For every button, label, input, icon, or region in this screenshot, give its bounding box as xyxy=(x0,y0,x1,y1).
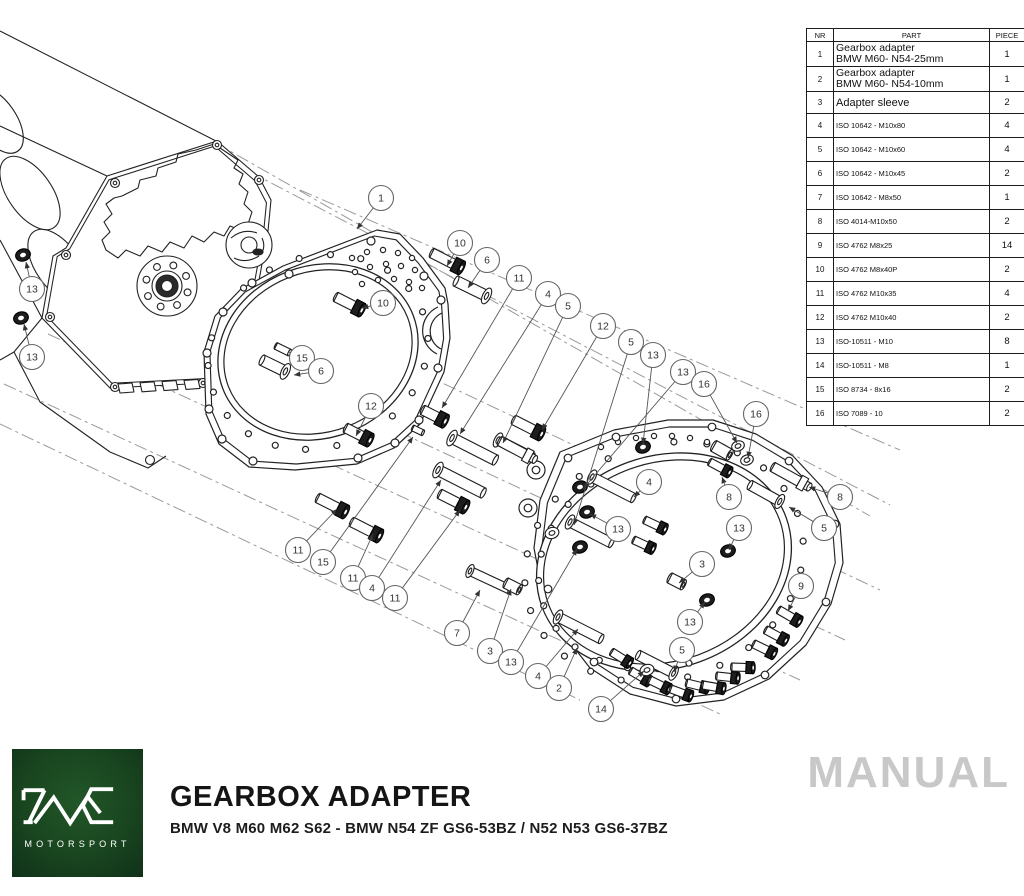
bolt-boss-hole xyxy=(201,381,205,385)
plate-hole xyxy=(787,596,793,602)
cylinder-bore xyxy=(0,77,34,162)
part-nr: 10 xyxy=(807,258,834,282)
plate-hole xyxy=(395,250,400,255)
parts-table-row: 15ISO 8734 - 8x162 xyxy=(807,378,1024,402)
part-nr: 7 xyxy=(807,186,834,210)
plate-hole xyxy=(717,662,723,668)
part-name: Adapter sleeve xyxy=(834,92,990,114)
callout-number: 5 xyxy=(565,301,571,313)
parts-table-row: 2Gearbox adapterBMW M60- N54-10mm1 xyxy=(807,67,1024,92)
parts-table-header-row: NR PART PIECE xyxy=(807,29,1024,42)
callout-balloon: 11 xyxy=(286,538,311,563)
part-piece-count: 2 xyxy=(990,378,1024,402)
callout-number: 11 xyxy=(293,545,304,557)
part-nr: 3 xyxy=(807,92,834,114)
plate-hole xyxy=(266,267,272,273)
plate-hole xyxy=(746,645,752,651)
parts-table-row: 13ISO-10511 - M108 xyxy=(807,330,1024,354)
plate-hole xyxy=(770,622,776,628)
callout-balloon: 12 xyxy=(359,394,384,419)
plate-hole xyxy=(349,255,354,260)
leader-line xyxy=(357,208,373,229)
manual-page: { "parts_table": { "headers": ["NR", "PA… xyxy=(0,0,1024,896)
parts-table-row: 1Gearbox adapterBMW M60- N54-25mm1 xyxy=(807,42,1024,67)
logo-text: MOTORSPORT xyxy=(24,839,130,849)
plate-hole xyxy=(303,446,309,452)
callout-number: 1 xyxy=(378,193,384,205)
plate-corner-hole xyxy=(564,454,572,462)
part-name: ISO 7089 - 10 xyxy=(834,402,990,426)
leader-line xyxy=(442,289,513,408)
part-name: ISO 4014-M10x50 xyxy=(834,210,990,234)
callout-number: 8 xyxy=(726,492,732,504)
crankshaft-flange xyxy=(137,256,197,316)
flange-hole xyxy=(174,302,181,309)
plate-hole xyxy=(538,551,544,557)
plate-hole xyxy=(409,390,415,396)
header-nr: NR xyxy=(807,29,834,42)
callout-number: 4 xyxy=(535,671,541,683)
plate-hole xyxy=(398,263,403,268)
callout-number: 9 xyxy=(798,581,804,593)
plate-hole xyxy=(334,442,340,448)
part-piece-count: 2 xyxy=(990,210,1024,234)
plate-corner-hole xyxy=(434,364,442,372)
flange-hole xyxy=(170,262,177,269)
part-piece-count: 1 xyxy=(990,186,1024,210)
callout-balloon: 13 xyxy=(20,277,45,302)
parts-table-row: 5ISO 10642 - M10x604 xyxy=(807,138,1024,162)
callout-number: 15 xyxy=(296,353,308,365)
plate-hole xyxy=(535,522,541,528)
callout-number: 5 xyxy=(679,645,685,657)
plate-hole xyxy=(210,389,216,395)
leader-line xyxy=(494,589,511,639)
dowel-pin xyxy=(411,425,425,436)
parts-table-row: 12ISO 4762 M10x402 xyxy=(807,306,1024,330)
part-name: ISO 4762 M10x40 xyxy=(834,306,990,330)
leader-line xyxy=(26,262,29,277)
flange-hole xyxy=(143,276,150,283)
plate-hole xyxy=(406,286,412,292)
callout-number: 4 xyxy=(545,289,551,301)
plate-corner-hole xyxy=(761,671,769,679)
leader-line xyxy=(463,590,480,622)
plate-hole xyxy=(412,267,417,272)
plate-hole xyxy=(409,255,414,260)
callout-balloon: 13 xyxy=(641,343,666,368)
plate-hole xyxy=(781,486,787,492)
plate-corner-hole xyxy=(437,296,445,304)
plate-corner-hole xyxy=(524,504,532,512)
callout-number: 4 xyxy=(646,477,652,489)
plate-hole xyxy=(528,608,534,614)
callout-number: 7 xyxy=(454,628,460,640)
callout-number: 5 xyxy=(628,337,634,349)
plate-hole xyxy=(800,538,806,544)
callout-number: 12 xyxy=(365,401,377,413)
plate-hole xyxy=(296,256,302,262)
header-part: PART xyxy=(834,29,990,42)
bolt-boss-hole xyxy=(48,315,52,319)
parts-table-row: 6ISO 10642 - M10x452 xyxy=(807,162,1024,186)
part-name: ISO-10511 - M10 xyxy=(834,330,990,354)
plate-hole xyxy=(561,653,567,659)
callout-balloon: 3 xyxy=(690,552,715,577)
callout-number: 6 xyxy=(484,255,490,267)
plate-hole xyxy=(651,433,656,438)
plate-hole xyxy=(572,644,578,650)
callout-number: 10 xyxy=(454,238,466,250)
callout-number: 3 xyxy=(699,559,705,571)
water-pump-boss xyxy=(226,222,272,268)
part-name: ISO 4762 M8x40P xyxy=(834,258,990,282)
parts-table-row: 7ISO 10642 - M8x501 xyxy=(807,186,1024,210)
callout-number: 16 xyxy=(750,409,762,421)
plate-hole xyxy=(241,285,247,291)
plate-hole xyxy=(553,625,559,631)
part-nr: 14 xyxy=(807,354,834,378)
plate-hole xyxy=(385,267,391,273)
callout-number: 11 xyxy=(348,573,359,585)
flange-hole xyxy=(145,293,152,300)
callout-balloon: 12 xyxy=(591,314,616,339)
part-piece-count: 1 xyxy=(990,354,1024,378)
plate-corner-hole xyxy=(590,658,598,666)
callout-number: 5 xyxy=(821,523,827,535)
plate-hole xyxy=(272,442,278,448)
plate-hole xyxy=(224,412,230,418)
part-piece-count: 4 xyxy=(990,282,1024,306)
callout-number: 15 xyxy=(317,557,329,569)
plate-hole xyxy=(391,276,396,281)
socket-bolt xyxy=(509,413,547,442)
part-piece-count: 2 xyxy=(990,258,1024,282)
part-piece-count: 4 xyxy=(990,114,1024,138)
bolt-boss-hole xyxy=(215,143,219,147)
plate-hole xyxy=(669,433,674,438)
countersunk-bolt xyxy=(445,429,501,469)
plate-corner-hole xyxy=(822,598,830,606)
part-nr: 15 xyxy=(807,378,834,402)
flange-hole xyxy=(184,289,191,296)
callout-number: 12 xyxy=(597,321,609,333)
plate-corner-hole xyxy=(415,416,423,424)
plate-corner-hole xyxy=(532,466,540,474)
plate-hole xyxy=(671,439,677,445)
callout-balloon: 7 xyxy=(445,621,470,646)
callout-balloon: 11 xyxy=(383,586,408,611)
plate-hole xyxy=(205,363,211,369)
engine-top-edge xyxy=(0,31,216,141)
callout-number: 13 xyxy=(26,284,38,296)
callout-number: 6 xyxy=(318,366,324,378)
plate-corner-hole xyxy=(218,435,226,443)
callout-number: 14 xyxy=(595,704,607,716)
manual-watermark: MANUAL xyxy=(807,748,1010,798)
page-subtitle: BMW V8 M60 M62 S62 - BMW N54 ZF GS6-53BZ… xyxy=(170,820,668,837)
callout-balloon: 6 xyxy=(475,248,500,273)
part-nr: 4 xyxy=(807,114,834,138)
plate-hole xyxy=(761,465,767,471)
callout-balloon: 14 xyxy=(589,697,614,722)
plate-hole xyxy=(536,578,542,584)
plate-corner-hole xyxy=(420,272,428,280)
leader-line xyxy=(307,509,337,541)
plate-corner-hole xyxy=(544,585,552,593)
part-name: Gearbox adapterBMW M60- N54-10mm xyxy=(834,67,990,92)
parts-table-row: 3Adapter sleeve2 xyxy=(807,92,1024,114)
plate-corner-hole xyxy=(391,439,399,447)
callout-balloon: 9 xyxy=(789,574,814,599)
part-piece-count: 1 xyxy=(990,42,1024,67)
parts-table-body: 1Gearbox adapterBMW M60- N54-25mm12Gearb… xyxy=(807,42,1024,426)
part-name: ISO 4762 M8x25 xyxy=(834,234,990,258)
plate-hole xyxy=(406,279,411,284)
callout-number: 13 xyxy=(684,617,696,629)
plate-hole xyxy=(798,567,804,573)
part-name: ISO 10642 - M10x60 xyxy=(834,138,990,162)
plate-hole xyxy=(375,277,380,282)
plate-hole xyxy=(541,632,547,638)
socket-bolt xyxy=(418,403,451,430)
part-piece-count: 4 xyxy=(990,138,1024,162)
plate-corner-hole xyxy=(785,457,793,465)
pan-boss xyxy=(146,456,155,465)
part-name: ISO 10642 - M8x50 xyxy=(834,186,990,210)
leader-line xyxy=(460,305,541,434)
nut xyxy=(12,310,30,326)
callout-number: 13 xyxy=(26,352,38,364)
flange-hole xyxy=(154,264,161,271)
part-piece-count: 14 xyxy=(990,234,1024,258)
plate-hole xyxy=(358,256,364,262)
plate-corner-hole xyxy=(248,279,256,287)
callout-balloon: 15 xyxy=(311,550,336,575)
callout-balloon: 13 xyxy=(499,650,524,675)
plate-corner-hole xyxy=(367,237,375,245)
plate-hole xyxy=(367,264,372,269)
part-piece-count: 2 xyxy=(990,162,1024,186)
socket-bolt xyxy=(313,491,351,520)
callout-balloon: 6 xyxy=(309,359,334,384)
plate-hole xyxy=(565,501,571,507)
leader-line xyxy=(402,510,460,588)
part-name: ISO 8734 - 8x16 xyxy=(834,378,990,402)
plate-hole xyxy=(687,435,692,440)
callout-balloon: 4 xyxy=(360,576,385,601)
callout-balloon: 10 xyxy=(371,291,396,316)
leader-line xyxy=(358,534,373,567)
parts-table-row: 16ISO 7089 - 102 xyxy=(807,402,1024,426)
callout-balloon: 16 xyxy=(692,372,717,397)
part-name: Gearbox adapterBMW M60- N54-25mm xyxy=(834,42,990,67)
page-title: GEARBOX ADAPTER xyxy=(170,781,471,814)
callout-number: 13 xyxy=(677,367,689,379)
plate-hole xyxy=(704,439,709,444)
bolt-boss-hole xyxy=(113,181,117,185)
header-piece: PIECE xyxy=(990,29,1024,42)
part-nr: 9 xyxy=(807,234,834,258)
leader-line xyxy=(379,480,441,577)
plate-corner-hole xyxy=(249,457,257,465)
callout-balloon: 8 xyxy=(717,485,742,510)
plate-hole xyxy=(588,668,594,674)
callout-number: 11 xyxy=(390,593,401,605)
callout-number: 16 xyxy=(698,379,710,391)
countersunk-bolt xyxy=(451,272,494,305)
callout-number: 8 xyxy=(837,492,843,504)
callout-balloon: 13 xyxy=(606,517,631,542)
plate-hole xyxy=(352,269,357,274)
parts-table-row: 8ISO 4014-M10x502 xyxy=(807,210,1024,234)
part-nr: 12 xyxy=(807,306,834,330)
part-piece-count: 2 xyxy=(990,306,1024,330)
bolt-boss-hole xyxy=(257,178,261,182)
callout-balloon: 5 xyxy=(619,330,644,355)
flange-notch xyxy=(184,379,200,389)
plate-hole xyxy=(576,473,582,479)
callout-number: 2 xyxy=(556,683,562,695)
callout-number: 3 xyxy=(487,646,493,658)
pmc-motorsport-logo: MOTORSPORT xyxy=(12,749,143,877)
part-name: ISO 10642 - M10x80 xyxy=(834,114,990,138)
callout-balloon: 8 xyxy=(828,485,853,510)
part-name: ISO 10642 - M10x45 xyxy=(834,162,990,186)
plate-hole xyxy=(522,580,528,586)
callout-balloon: 10 xyxy=(448,231,473,256)
part-name: ISO-10511 - M8 xyxy=(834,354,990,378)
parts-table-row: 11ISO 4762 M10x354 xyxy=(807,282,1024,306)
plate-hole xyxy=(420,309,426,315)
part-nr: 1 xyxy=(807,42,834,67)
plate-corner-hole xyxy=(612,433,620,441)
cylinder-bore xyxy=(0,146,72,240)
parts-table: NR PART PIECE 1Gearbox adapterBMW M60- N… xyxy=(806,28,1024,426)
callout-balloon: 2 xyxy=(547,676,572,701)
callout-balloon: 13 xyxy=(20,345,45,370)
flange-notch xyxy=(118,383,134,393)
part-nr: 11 xyxy=(807,282,834,306)
callout-balloon: 5 xyxy=(670,638,695,663)
part-nr: 16 xyxy=(807,402,834,426)
plate-corner-hole xyxy=(203,349,211,357)
callout-balloon: 4 xyxy=(637,470,662,495)
plate-hole xyxy=(618,677,624,683)
plate-hole xyxy=(364,249,369,254)
part-piece-count: 2 xyxy=(990,402,1024,426)
callout-balloon: 5 xyxy=(812,516,837,541)
nut xyxy=(14,247,32,263)
leader-line xyxy=(542,337,597,430)
flange-hole xyxy=(157,303,164,310)
plate-corner-hole xyxy=(285,270,293,278)
callout-number: 13 xyxy=(647,350,659,362)
parts-table-row: 4ISO 10642 - M10x804 xyxy=(807,114,1024,138)
engine-left-edge xyxy=(0,126,107,176)
part-piece-count: 1 xyxy=(990,67,1024,92)
plate-hole xyxy=(245,431,251,437)
part-nr: 2 xyxy=(807,67,834,92)
parts-table-row: 9ISO 4762 M8x2514 xyxy=(807,234,1024,258)
pmc-monogram-icon: MOTORSPORT xyxy=(12,749,143,877)
plate-hole xyxy=(327,252,333,258)
plate-hole xyxy=(633,435,638,440)
plate-hole xyxy=(419,285,424,290)
callout-balloon: 1 xyxy=(369,186,394,211)
part-nr: 5 xyxy=(807,138,834,162)
callout-number: 13 xyxy=(733,523,745,535)
callout-number: 10 xyxy=(377,298,389,310)
socket-bolt xyxy=(347,515,385,544)
callout-number: 11 xyxy=(514,273,525,285)
callout-balloon: 13 xyxy=(678,610,703,635)
plate-hole xyxy=(425,335,431,341)
plate-hole xyxy=(383,261,388,266)
callout-number: 13 xyxy=(505,657,517,669)
plate-hole xyxy=(524,551,530,557)
part-nr: 6 xyxy=(807,162,834,186)
callout-number: 13 xyxy=(612,524,624,536)
plate-hole xyxy=(421,363,427,369)
part-piece-count: 8 xyxy=(990,330,1024,354)
plate-hole xyxy=(552,496,558,502)
bolt-boss-hole xyxy=(113,385,117,389)
plate-hole xyxy=(209,335,215,341)
part-piece-count: 2 xyxy=(990,92,1024,114)
callout-number: 4 xyxy=(369,583,375,595)
plate-hole xyxy=(389,413,395,419)
bolt-boss-hole xyxy=(64,253,68,257)
callout-balloon: 13 xyxy=(727,516,752,541)
hex-bolt xyxy=(495,434,540,467)
part-nr: 8 xyxy=(807,210,834,234)
plate-corner-hole xyxy=(354,454,362,462)
plate-hole xyxy=(380,247,385,252)
flange-notch xyxy=(140,382,156,392)
part-nr: 13 xyxy=(807,330,834,354)
leader-line xyxy=(564,648,577,677)
callout-balloon: 16 xyxy=(744,402,769,427)
plate-corner-hole xyxy=(205,405,213,413)
callout-balloon: 11 xyxy=(507,266,532,291)
flange-notch xyxy=(162,381,178,391)
plate-corner-hole xyxy=(708,423,716,431)
flange-hole xyxy=(183,273,190,280)
parts-table-row: 14ISO-10511 - M81 xyxy=(807,354,1024,378)
part-name: ISO 4762 M10x35 xyxy=(834,282,990,306)
callout-balloon: 5 xyxy=(556,294,581,319)
adapter-plate-2 xyxy=(506,418,843,706)
parts-table-row: 10ISO 4762 M8x40P2 xyxy=(807,258,1024,282)
plate-corner-hole xyxy=(219,308,227,316)
plate-hole xyxy=(359,281,364,286)
